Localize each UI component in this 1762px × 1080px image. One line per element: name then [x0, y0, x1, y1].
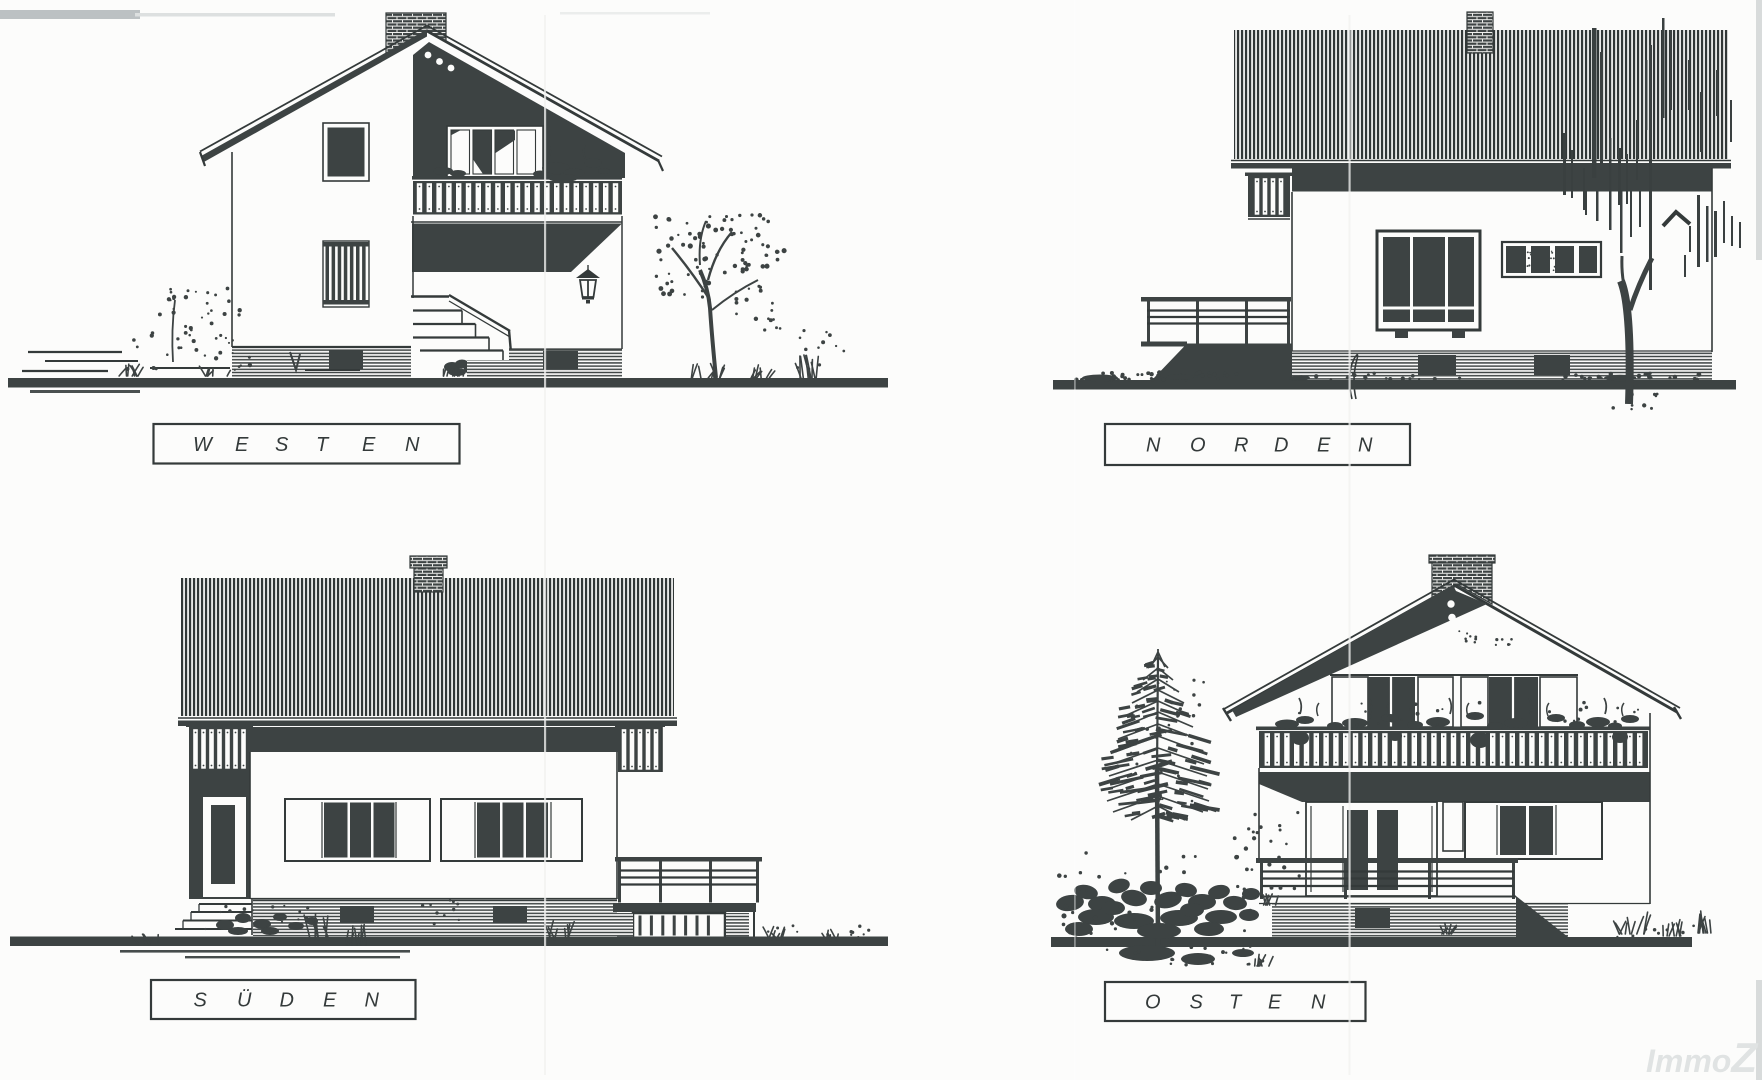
svg-text:N: N — [1311, 992, 1326, 1014]
svg-text:N: N — [365, 990, 380, 1012]
svg-text:N: N — [405, 434, 420, 456]
svg-text:Ü: Ü — [237, 990, 252, 1012]
svg-text:T: T — [1229, 992, 1243, 1014]
svg-text:D: D — [280, 990, 294, 1012]
svg-text:O: O — [1145, 992, 1161, 1014]
svg-text:W: W — [193, 434, 214, 456]
svg-text:E: E — [235, 434, 249, 456]
svg-text:N: N — [1358, 435, 1373, 457]
svg-text:E: E — [323, 990, 337, 1012]
svg-text:S: S — [275, 434, 289, 456]
svg-text:E: E — [362, 434, 376, 456]
svg-text:O: O — [1190, 435, 1206, 457]
svg-text:E: E — [1268, 992, 1282, 1014]
svg-text:E: E — [1317, 435, 1331, 457]
svg-text:T: T — [316, 434, 330, 456]
svg-text:D: D — [1274, 435, 1288, 457]
svg-text:S: S — [1190, 992, 1204, 1014]
svg-text:S: S — [194, 990, 208, 1012]
svg-text:R: R — [1234, 435, 1248, 457]
svg-text:N: N — [1146, 435, 1161, 457]
